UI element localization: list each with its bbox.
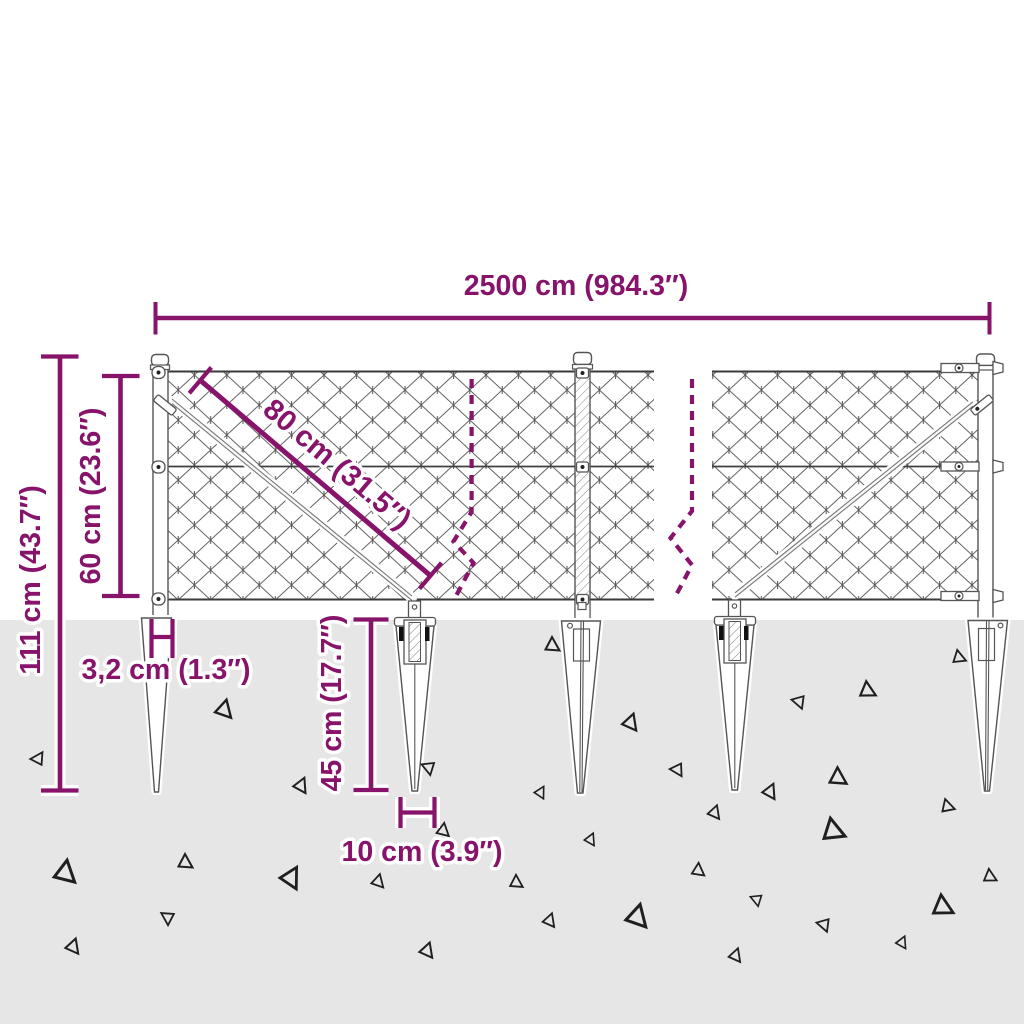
svg-text:111 cm (43.7″): 111 cm (43.7″) [15,485,47,675]
svg-text:2500 cm (984.3″): 2500 cm (984.3″) [464,270,688,302]
svg-text:60 cm (23.6″): 60 cm (23.6″) [75,408,107,585]
svg-text:10 cm (3.9″): 10 cm (3.9″) [342,836,503,868]
svg-text:45 cm (17.7″): 45 cm (17.7″) [316,615,348,792]
svg-text:3,2 cm (1.3″): 3,2 cm (1.3″) [82,654,251,686]
